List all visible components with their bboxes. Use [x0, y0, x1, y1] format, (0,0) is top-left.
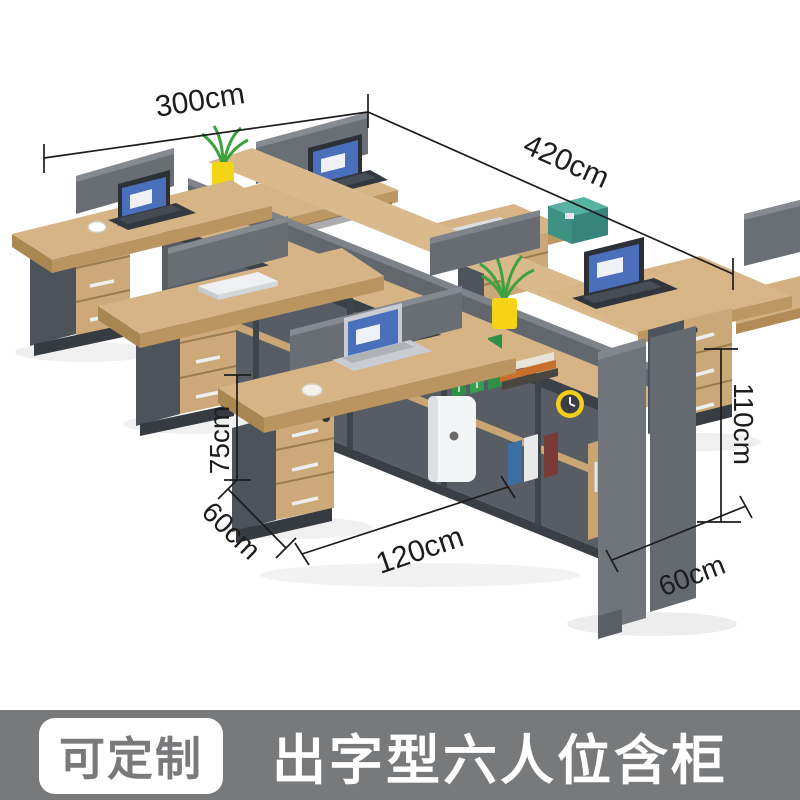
- furniture-illustration: [0, 0, 800, 800]
- footer-bar: 可定制 出字型六人位含柜: [0, 710, 800, 800]
- customizable-badge: 可定制: [39, 718, 223, 794]
- product-image: 300cm 420cm 75cm 60cm 120cm 110cm 60cm 可…: [0, 0, 800, 800]
- product-title: 出字型六人位含柜: [230, 710, 770, 800]
